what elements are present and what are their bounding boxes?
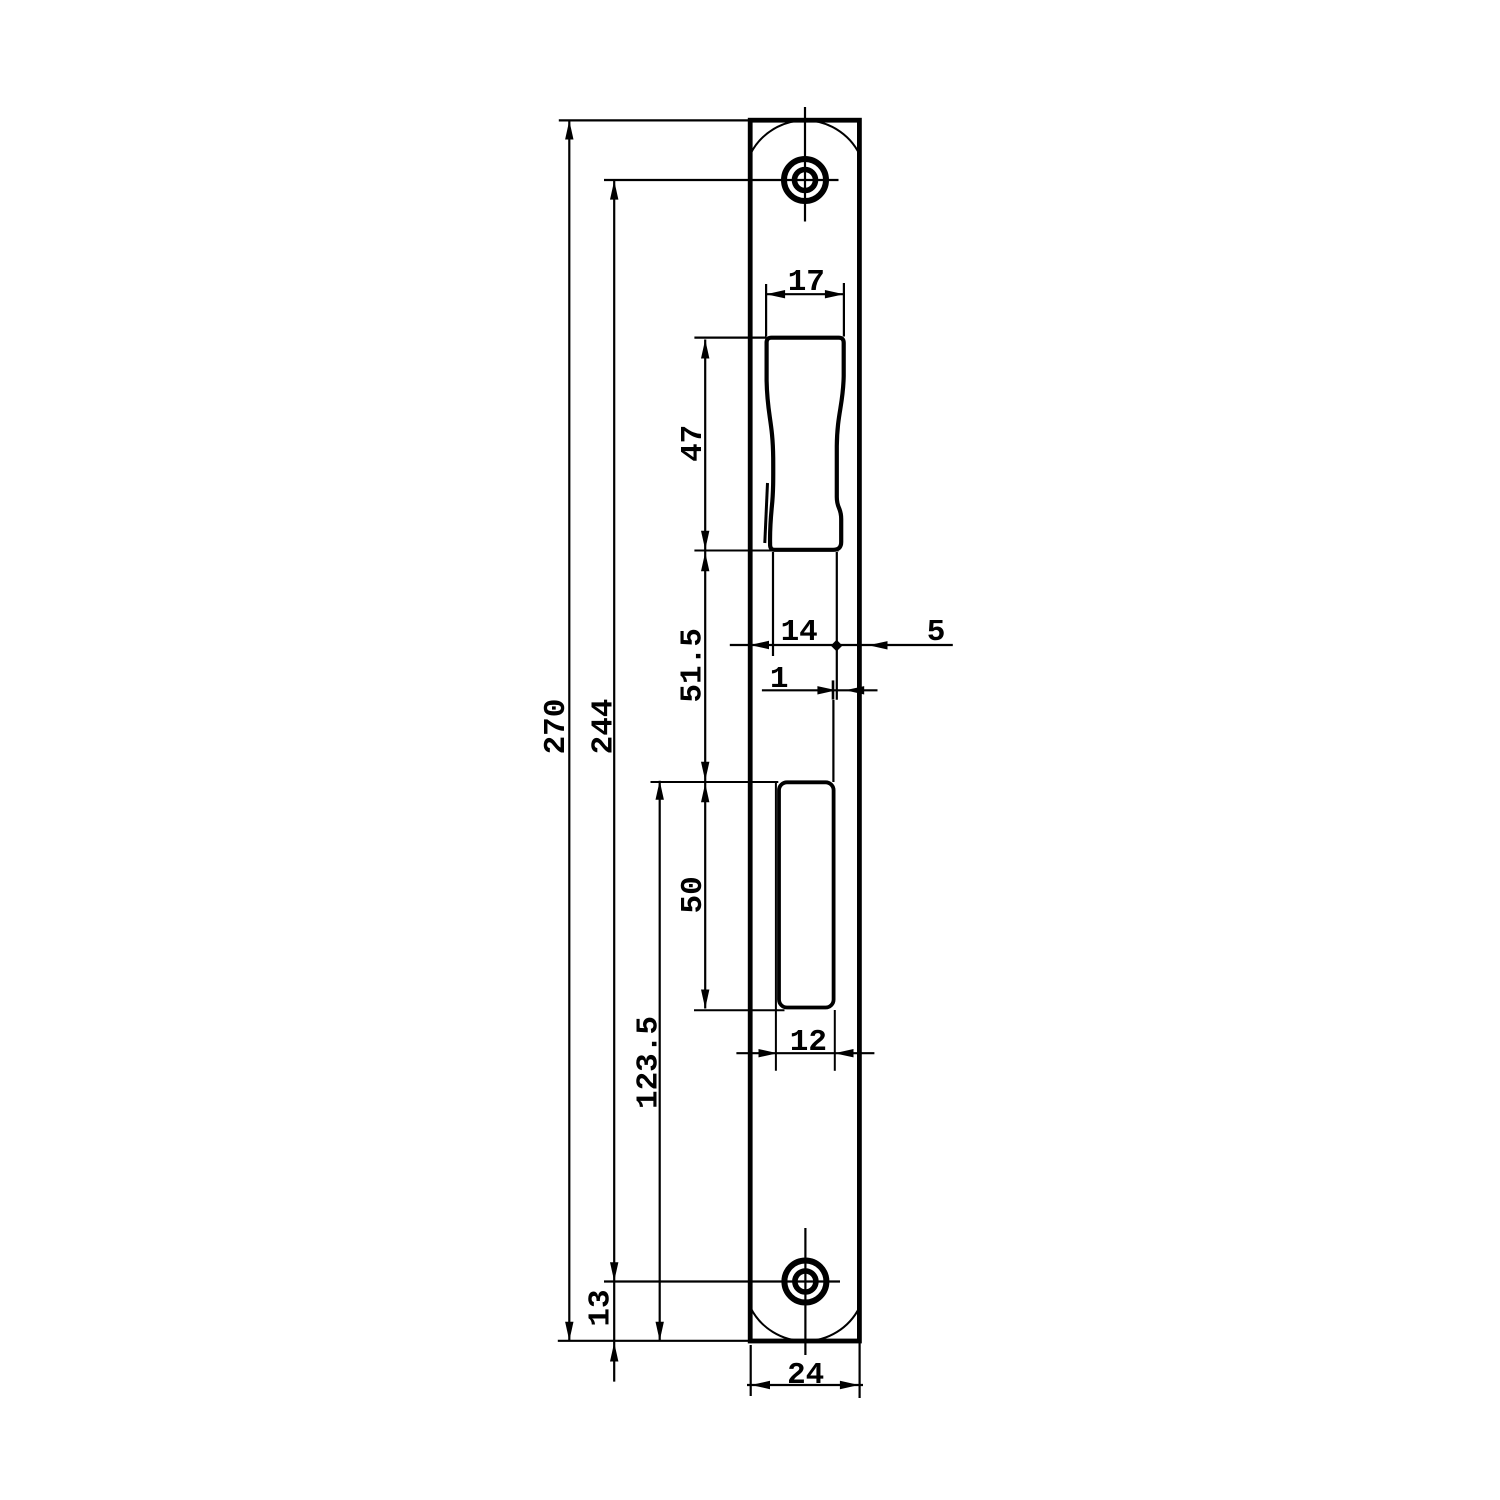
svg-text:1: 1 (770, 662, 789, 697)
svg-text:244: 244 (586, 699, 621, 755)
svg-text:14: 14 (781, 615, 818, 650)
svg-text:123.5: 123.5 (631, 1016, 666, 1109)
svg-text:270: 270 (539, 699, 574, 755)
svg-text:12: 12 (790, 1025, 827, 1060)
svg-text:13: 13 (583, 1289, 618, 1326)
svg-text:51.5: 51.5 (675, 628, 710, 702)
svg-text:17: 17 (788, 265, 825, 300)
svg-text:5: 5 (927, 615, 946, 650)
svg-text:50: 50 (676, 876, 711, 913)
svg-text:24: 24 (787, 1358, 824, 1393)
svg-text:47: 47 (676, 425, 711, 462)
